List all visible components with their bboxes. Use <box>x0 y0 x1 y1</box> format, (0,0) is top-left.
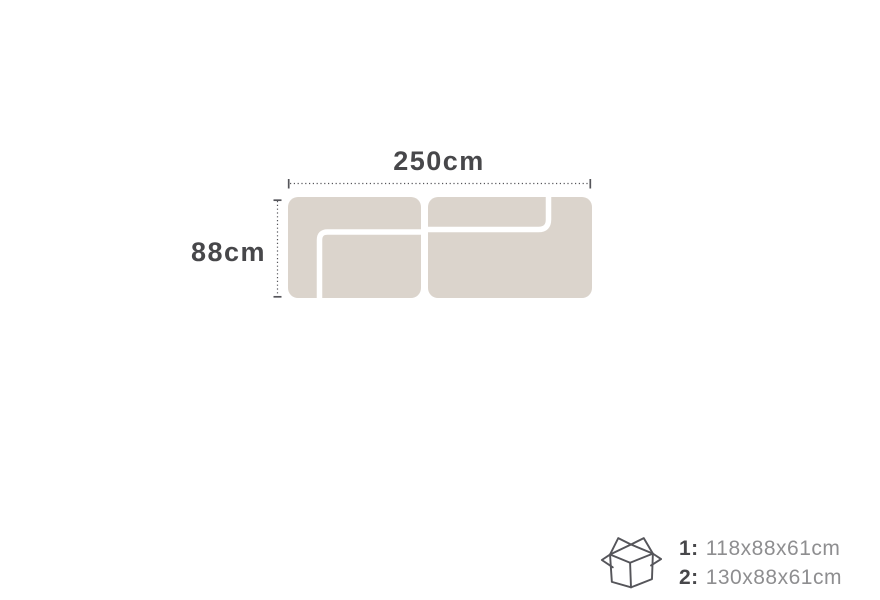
box-2-label: 2: <box>679 566 699 589</box>
packaging-info: 1:118x88x61cm 2:130x88x61cm <box>600 531 842 594</box>
sofa-module-left <box>288 197 421 298</box>
product-dimension-diagram: 250cm 88cm 1:118x88x61cm <box>0 0 880 600</box>
depth-dimension-label: 88cm <box>180 237 266 268</box>
width-dimension-line <box>289 179 591 189</box>
packaging-size-row-2: 2:130x88x61cm <box>679 563 842 592</box>
box-1-label: 1: <box>679 537 699 560</box>
sofa-diagram <box>0 0 880 600</box>
depth-dimension-line <box>274 200 282 297</box>
sofa-module-right <box>428 197 592 298</box>
packaging-size-row-1: 1:118x88x61cm <box>679 534 842 563</box>
box-1-dimensions: 118x88x61cm <box>706 537 841 560</box>
open-box-icon <box>600 531 662 594</box>
packaging-size-list: 1:118x88x61cm 2:130x88x61cm <box>679 534 842 592</box>
width-dimension-label: 250cm <box>393 146 485 177</box>
box-2-dimensions: 130x88x61cm <box>706 566 842 589</box>
